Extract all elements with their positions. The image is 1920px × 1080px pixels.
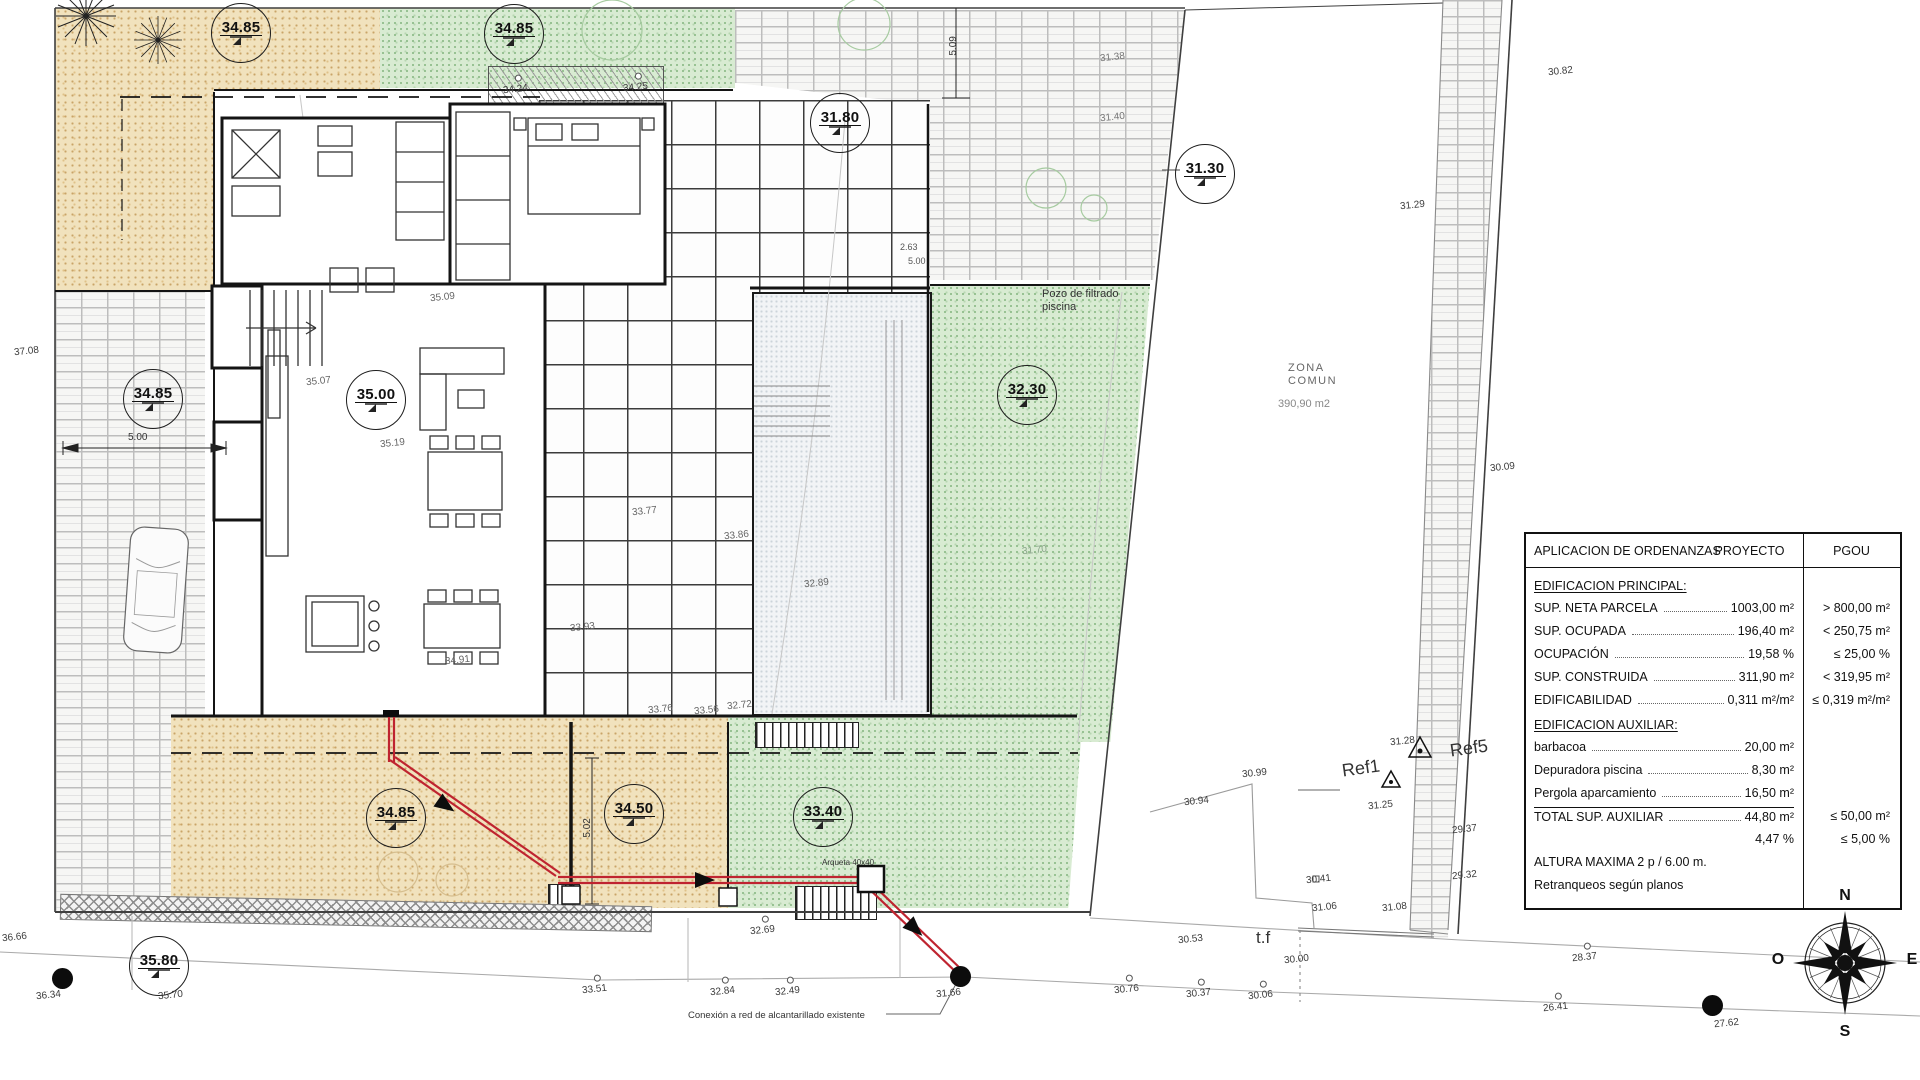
row-proyecto-value: 20,00 m² — [1745, 740, 1794, 754]
row-proyecto-value: 19,58 % — [1748, 647, 1794, 661]
row-proyecto-value: 4,47 % — [1755, 832, 1794, 846]
spot-level: 31.25 — [1367, 799, 1393, 813]
row-leader-dots — [1669, 820, 1740, 821]
spot-marker-icon — [1259, 980, 1267, 988]
row-proyecto-value: 311,90 m² — [1739, 670, 1794, 684]
spot-marker-icon — [593, 974, 601, 982]
row-leader-dots — [1662, 796, 1740, 797]
level-flag-icon — [147, 969, 171, 979]
table-divider — [1803, 534, 1804, 908]
elevation-marker: 34.85 — [211, 3, 271, 63]
altura-maxima: ALTURA MAXIMA 2 p / 6.00 m. — [1534, 851, 1707, 874]
row-label: TOTAL SUP. AUXILIAR — [1534, 810, 1663, 824]
spot-level: 30.00 — [1283, 953, 1309, 967]
spot-level: 35.07 — [305, 375, 331, 389]
manhole-dot — [52, 968, 73, 989]
elevation-value: 34.85 — [493, 21, 536, 38]
table-row: Pergola aparcamiento16,50 m² — [1534, 781, 1900, 804]
compass-rose: N S E O — [1770, 888, 1920, 1043]
row-proyecto-value: 44,80 m² — [1745, 810, 1794, 824]
elevation-value: 35.00 — [355, 387, 398, 404]
plan-note: Arqueta 40x40 — [822, 858, 874, 867]
row-label: Depuradora piscina — [1534, 763, 1642, 777]
row-label: OCUPACIÓN — [1534, 647, 1609, 661]
spot-level: 27.62 — [1713, 1017, 1739, 1031]
row-leader-dots — [1654, 680, 1735, 681]
table-section-title: EDIFICACION PRINCIPAL: — [1534, 579, 1900, 593]
spot-marker-icon — [1197, 978, 1205, 986]
spot-level: 30.06 — [1247, 989, 1273, 1003]
elevation-marker: 34.85 — [366, 788, 426, 848]
elevation-value: 31.80 — [819, 110, 862, 127]
drain-grid-steps — [755, 722, 859, 748]
spot-level: 35.70 — [157, 989, 183, 1003]
spot-level: 29.32 — [1451, 869, 1477, 883]
level-flag-icon — [1193, 177, 1217, 187]
row-leader-dots — [1592, 750, 1741, 751]
manhole-dot — [1702, 995, 1723, 1016]
table-row: TOTAL SUP. AUXILIAR44,80 m²≤ 50,00 m² — [1534, 804, 1900, 827]
elevation-value: 34.85 — [375, 805, 418, 822]
row-pgou-value: < 250,75 m² — [1794, 624, 1900, 638]
elevation-marker: 35.00 — [346, 370, 406, 430]
spot-level: 30.94 — [1183, 795, 1209, 809]
spot-level: 30.99 — [1241, 767, 1267, 781]
table-row-main: Depuradora piscina8,30 m² — [1534, 763, 1794, 777]
row-proyecto-value: 1003,00 m² — [1731, 601, 1794, 615]
spot-level: 30.76 — [1113, 983, 1139, 997]
spot-level: 35.19 — [379, 437, 405, 451]
row-label: SUP. CONSTRUIDA — [1534, 670, 1648, 684]
level-flag-icon — [502, 37, 526, 47]
row-leader-dots — [1632, 634, 1734, 635]
plan-note: 390,90 m2 — [1278, 398, 1330, 411]
spot-level: 36.34 — [35, 989, 61, 1003]
table-row: SUP. NETA PARCELA1003,00 m²> 800,00 m² — [1534, 596, 1900, 619]
table-row-main: 4,47 % — [1534, 832, 1794, 846]
spot-level: 31.66 — [935, 987, 961, 1001]
elevation-value: 33.40 — [802, 804, 845, 821]
level-flag-icon — [364, 403, 388, 413]
plan-note: 5.02 — [582, 818, 594, 837]
plan-note: Pozo de filtrado piscina — [1042, 288, 1118, 314]
table-row-main: SUP. CONSTRUIDA311,90 m² — [1534, 670, 1794, 684]
table-row: EDIFICABILIDAD0,311 m²/m²≤ 0,319 m²/m² — [1534, 688, 1900, 711]
table-row: SUP. CONSTRUIDA311,90 m²< 319,95 m² — [1534, 665, 1900, 688]
level-flag-icon — [1015, 398, 1039, 408]
level-flag-icon — [141, 402, 165, 412]
ordinance-table-header: APLICACION DE ORDENANZAS PROYECTO PGOU — [1526, 534, 1900, 568]
manhole-dot — [950, 966, 971, 987]
drain-grid-street — [795, 886, 877, 920]
spot-level: 36.66 — [1, 931, 27, 945]
row-proyecto-value: 8,30 m² — [1752, 763, 1794, 777]
level-flag-icon — [622, 817, 646, 827]
spot-level: 26.41 — [1542, 1001, 1568, 1015]
table-row: SUP. OCUPADA196,40 m²< 250,75 m² — [1534, 619, 1900, 642]
compass-south-label: S — [1840, 1023, 1851, 1041]
plan-note: Conexión a red de alcantarillado existen… — [688, 1010, 865, 1021]
level-flag-icon — [811, 820, 835, 830]
spot-level: 31.28 — [1389, 735, 1415, 749]
row-label: barbacoa — [1534, 740, 1586, 754]
compass-icon — [1770, 888, 1920, 1038]
col-proyecto: PROYECTO — [1696, 544, 1803, 558]
plan-note: 5.00 — [128, 432, 147, 444]
spot-level: 30.37 — [1185, 987, 1211, 1001]
row-label: SUP. OCUPADA — [1534, 624, 1626, 638]
elevation-marker: 35.80 — [129, 936, 189, 996]
table-section-title: EDIFICACION AUXILIAR: — [1534, 718, 1900, 732]
ordinance-table-footer: ALTURA MAXIMA 2 p / 6.00 m. Retranqueos … — [1534, 851, 1707, 896]
plan-note: t.f — [1256, 928, 1270, 948]
spot-level: 34.91 — [444, 654, 470, 668]
row-pgou-value: ≤ 5,00 % — [1794, 832, 1900, 846]
spot-level: 32.84 — [709, 985, 735, 999]
spot-marker-icon — [721, 976, 729, 984]
elevation-marker: 34.85 — [484, 4, 544, 64]
elevation-value: 31.30 — [1184, 161, 1227, 178]
row-pgou-value: < 319,95 m² — [1794, 670, 1900, 684]
col-pgou: PGOU — [1803, 544, 1900, 558]
ordinance-table: APLICACION DE ORDENANZAS PROYECTO PGOU E… — [1524, 532, 1902, 910]
row-pgou-value: ≤ 25,00 % — [1794, 647, 1900, 661]
spot-marker-icon — [761, 915, 769, 923]
table-row-main: TOTAL SUP. AUXILIAR44,80 m² — [1534, 807, 1794, 824]
row-leader-dots — [1648, 773, 1747, 774]
spot-marker-icon — [1125, 974, 1133, 982]
spot-level: 31.06 — [1311, 901, 1337, 915]
elevation-marker: 34.85 — [123, 369, 183, 429]
spot-marker-icon — [786, 976, 794, 984]
table-row: OCUPACIÓN19,58 %≤ 25,00 % — [1534, 642, 1900, 665]
table-row-main: EDIFICABILIDAD0,311 m²/m² — [1534, 693, 1794, 707]
col-ordenanzas: APLICACION DE ORDENANZAS — [1526, 544, 1696, 558]
retranqueos-note: Retranqueos según planos — [1534, 874, 1707, 897]
row-proyecto-value: 196,40 m² — [1738, 624, 1794, 638]
row-label: EDIFICABILIDAD — [1534, 693, 1632, 707]
spot-level: 35.09 — [429, 291, 455, 305]
elevation-value: 34.85 — [132, 386, 175, 403]
spot-level: 33.51 — [581, 983, 607, 997]
spot-level: 32.49 — [774, 985, 800, 999]
spot-level: 28.37 — [1571, 951, 1597, 965]
plan-note: 5.09 — [948, 36, 960, 55]
table-row: Depuradora piscina8,30 m² — [1534, 758, 1900, 781]
spot-marker-icon — [1554, 992, 1562, 1000]
plan-note: 5.00 — [908, 256, 926, 267]
compass-north-label: N — [1839, 887, 1851, 905]
pool — [752, 292, 932, 716]
table-row-main: barbacoa20,00 m² — [1534, 740, 1794, 754]
table-row-main: OCUPACIÓN19,58 % — [1534, 647, 1794, 661]
elevation-value: 34.50 — [613, 801, 656, 818]
site-plan: 34.8534.8531.8031.3034.8535.0032.3034.85… — [0, 0, 1920, 1080]
spot-level: 31.29 — [1399, 199, 1425, 213]
elevation-value: 34.85 — [220, 20, 263, 37]
elevation-marker: 33.40 — [793, 787, 853, 847]
spot-level: 37.08 — [13, 345, 39, 359]
table-row: 4,47 %≤ 5,00 % — [1534, 827, 1900, 850]
elevation-value: 35.80 — [138, 953, 181, 970]
table-row-main: SUP. OCUPADA196,40 m² — [1534, 624, 1794, 638]
spot-level: 30.41 — [1305, 873, 1331, 887]
row-label: SUP. NETA PARCELA — [1534, 601, 1658, 615]
table-row: barbacoa20,00 m² — [1534, 735, 1900, 758]
elevation-value: 32.30 — [1006, 382, 1049, 399]
row-leader-dots — [1615, 657, 1744, 658]
spot-marker-icon — [1583, 942, 1591, 950]
spot-level: 30.82 — [1547, 65, 1573, 79]
row-pgou-value: > 800,00 m² — [1794, 601, 1900, 615]
row-proyecto-value: 16,50 m² — [1745, 786, 1794, 800]
compass-east-label: E — [1907, 951, 1918, 969]
spot-level: 29.37 — [1451, 823, 1477, 837]
row-label: Pergola aparcamiento — [1534, 786, 1656, 800]
plan-note: 2.63 — [900, 242, 918, 253]
spot-level: 30.53 — [1177, 933, 1203, 947]
elevation-marker: 34.50 — [604, 784, 664, 844]
table-row-main: Pergola aparcamiento16,50 m² — [1534, 786, 1794, 800]
plan-note: ZONA COMUN — [1288, 362, 1337, 388]
elevation-marker: 32.30 — [997, 365, 1057, 425]
plan-note: Ref5 — [1449, 735, 1490, 761]
row-pgou-value: ≤ 50,00 m² — [1794, 809, 1900, 823]
lawn-area-right — [930, 285, 1150, 742]
level-flag-icon — [828, 126, 852, 136]
compass-west-label: O — [1772, 951, 1784, 969]
level-flag-icon — [229, 36, 253, 46]
table-row-main: SUP. NETA PARCELA1003,00 m² — [1534, 601, 1794, 615]
elevation-marker: 31.30 — [1175, 144, 1235, 204]
spot-level: 30.09 — [1489, 461, 1515, 475]
level-flag-icon — [384, 821, 408, 831]
elevation-marker: 31.80 — [810, 93, 870, 153]
spot-level: 32.69 — [749, 924, 775, 938]
row-proyecto-value: 0,311 m²/m² — [1728, 693, 1794, 707]
row-leader-dots — [1664, 611, 1727, 612]
ordinance-table-body: EDIFICACION PRINCIPAL:SUP. NETA PARCELA1… — [1526, 568, 1900, 850]
spot-level: 31.08 — [1381, 901, 1407, 915]
row-pgou-value: ≤ 0,319 m²/m² — [1794, 693, 1900, 707]
row-leader-dots — [1638, 703, 1724, 704]
plan-note: Ref1 — [1341, 755, 1382, 781]
